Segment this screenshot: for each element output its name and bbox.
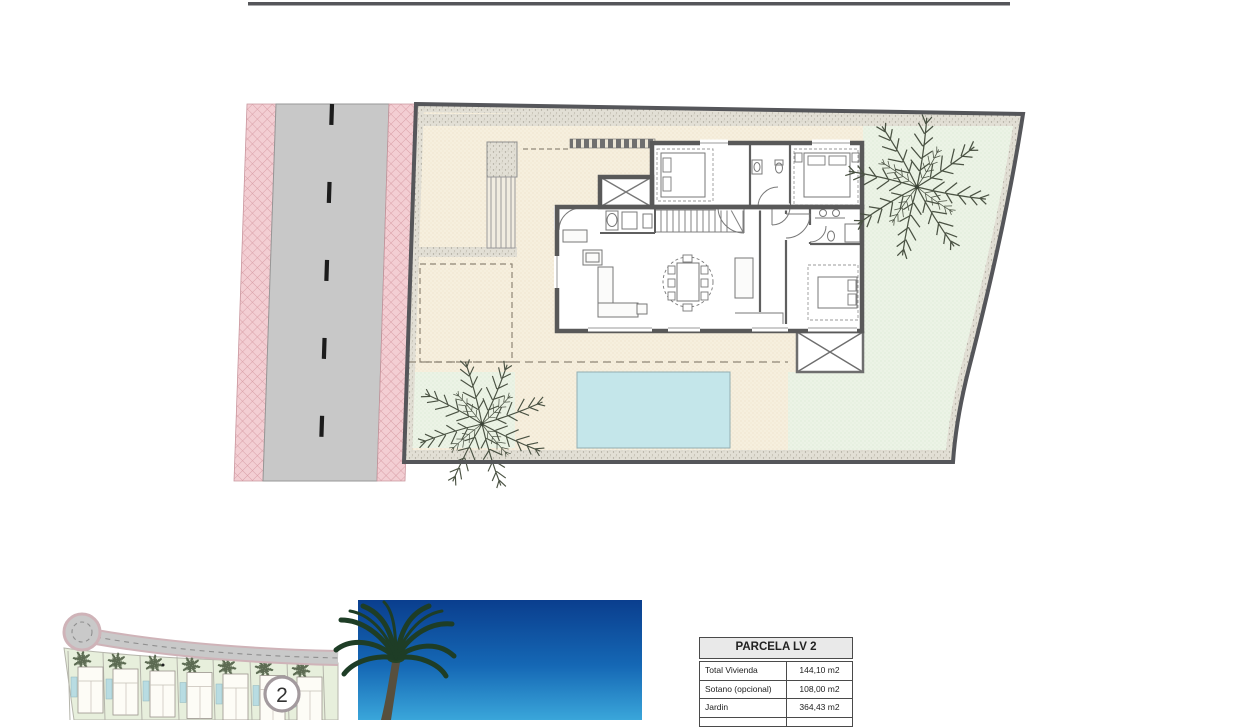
table-row: Jardin 364,43 m2 — [700, 698, 852, 717]
row-label: Total Vivienda — [700, 662, 786, 680]
cabinet — [563, 230, 587, 242]
parcel-title: PARCELA LV 2 — [699, 637, 853, 659]
row-value: 108,00 m2 — [786, 681, 852, 699]
parcel-marker: 2 — [265, 677, 299, 711]
row-label: Sotano (opcional) — [700, 681, 786, 699]
plan-sheet: 2 — [0, 0, 1240, 720]
sofa-seat — [598, 303, 638, 317]
location-photo — [336, 600, 642, 720]
row-label — [700, 718, 786, 726]
row-value: 364,43 m2 — [786, 699, 852, 717]
row-value — [786, 718, 852, 726]
pergola-slats — [570, 139, 655, 148]
swimming-pool — [577, 372, 730, 448]
side-table — [637, 304, 647, 314]
street — [234, 104, 417, 481]
table-row: Total Vivienda 144,10 m2 — [700, 662, 852, 680]
parcel — [400, 104, 1023, 507]
bedroom-1 — [657, 149, 713, 201]
spec-rows: Total Vivienda 144,10 m2 Sotano (opciona… — [699, 661, 853, 727]
gravel-entry-pad — [487, 142, 517, 177]
sheet-top-rule — [248, 2, 1010, 6]
table-row-partial — [700, 717, 852, 726]
row-label: Jardin — [700, 699, 786, 717]
sideboard — [735, 258, 753, 298]
table-row: Sotano (opcional) 108,00 m2 — [700, 680, 852, 699]
entry-steps — [487, 177, 515, 248]
parcel-marker-label: 2 — [276, 684, 288, 707]
roadway — [263, 104, 389, 481]
overview-road — [64, 614, 338, 658]
overview-culdesac — [64, 614, 100, 650]
parcel-spec-table: PARCELA LV 2 Total Vivienda 144,10 m2 So… — [699, 637, 853, 727]
overview-site-map: 2 — [64, 614, 338, 720]
bedroom-2 — [794, 149, 859, 205]
row-value: 144,10 m2 — [786, 662, 852, 680]
